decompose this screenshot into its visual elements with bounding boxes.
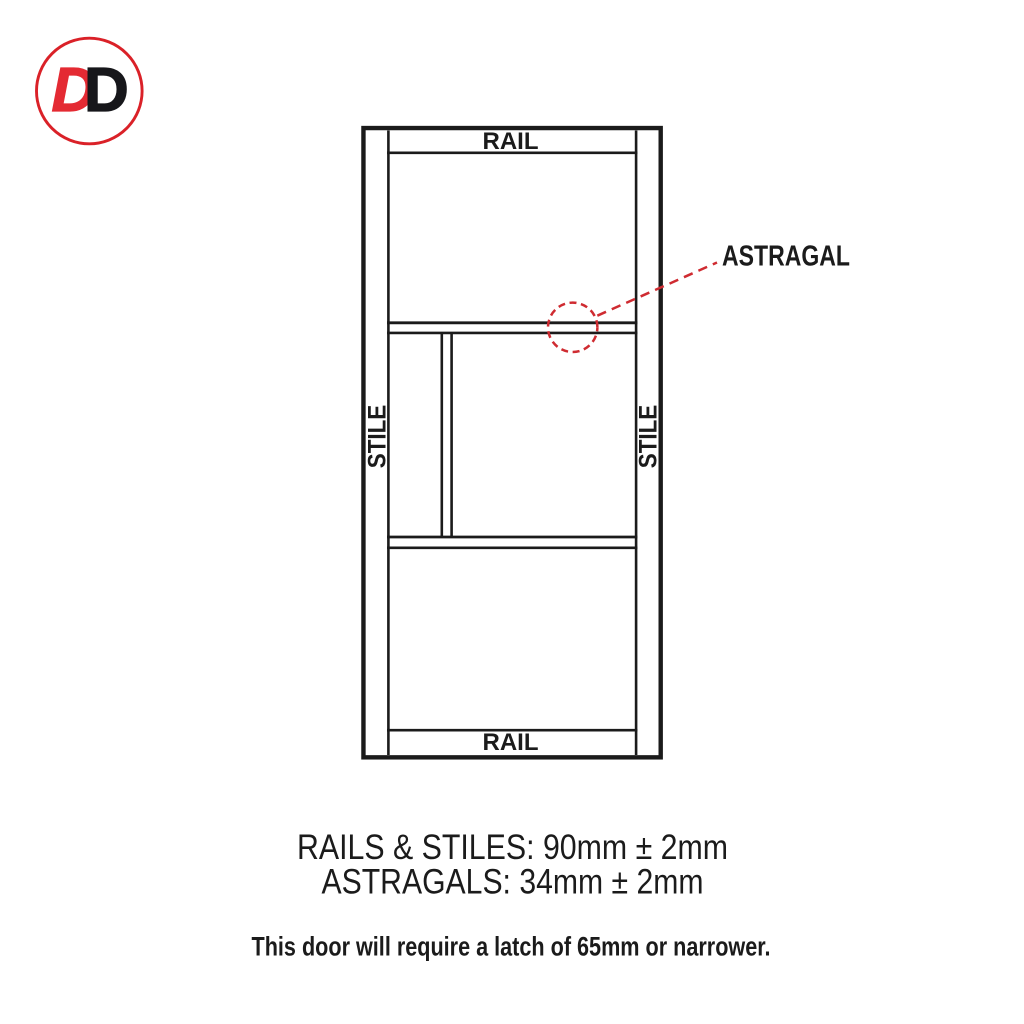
svg-text:RAIL: RAIL [483,729,539,756]
svg-text:STILE: STILE [635,405,663,469]
svg-text:D: D [84,56,129,125]
svg-text:This door will require a latch: This door will require a latch of 65mm o… [252,931,771,961]
svg-text:STILE: STILE [364,405,392,469]
svg-text:RAIL: RAIL [483,128,539,155]
svg-text:ASTRAGAL: ASTRAGAL [722,241,850,273]
svg-text:RAILS & STILES: 90mm ± 2mm: RAILS & STILES: 90mm ± 2mm [297,828,728,867]
svg-text:ASTRAGALS: 34mm ± 2mm: ASTRAGALS: 34mm ± 2mm [322,863,704,902]
